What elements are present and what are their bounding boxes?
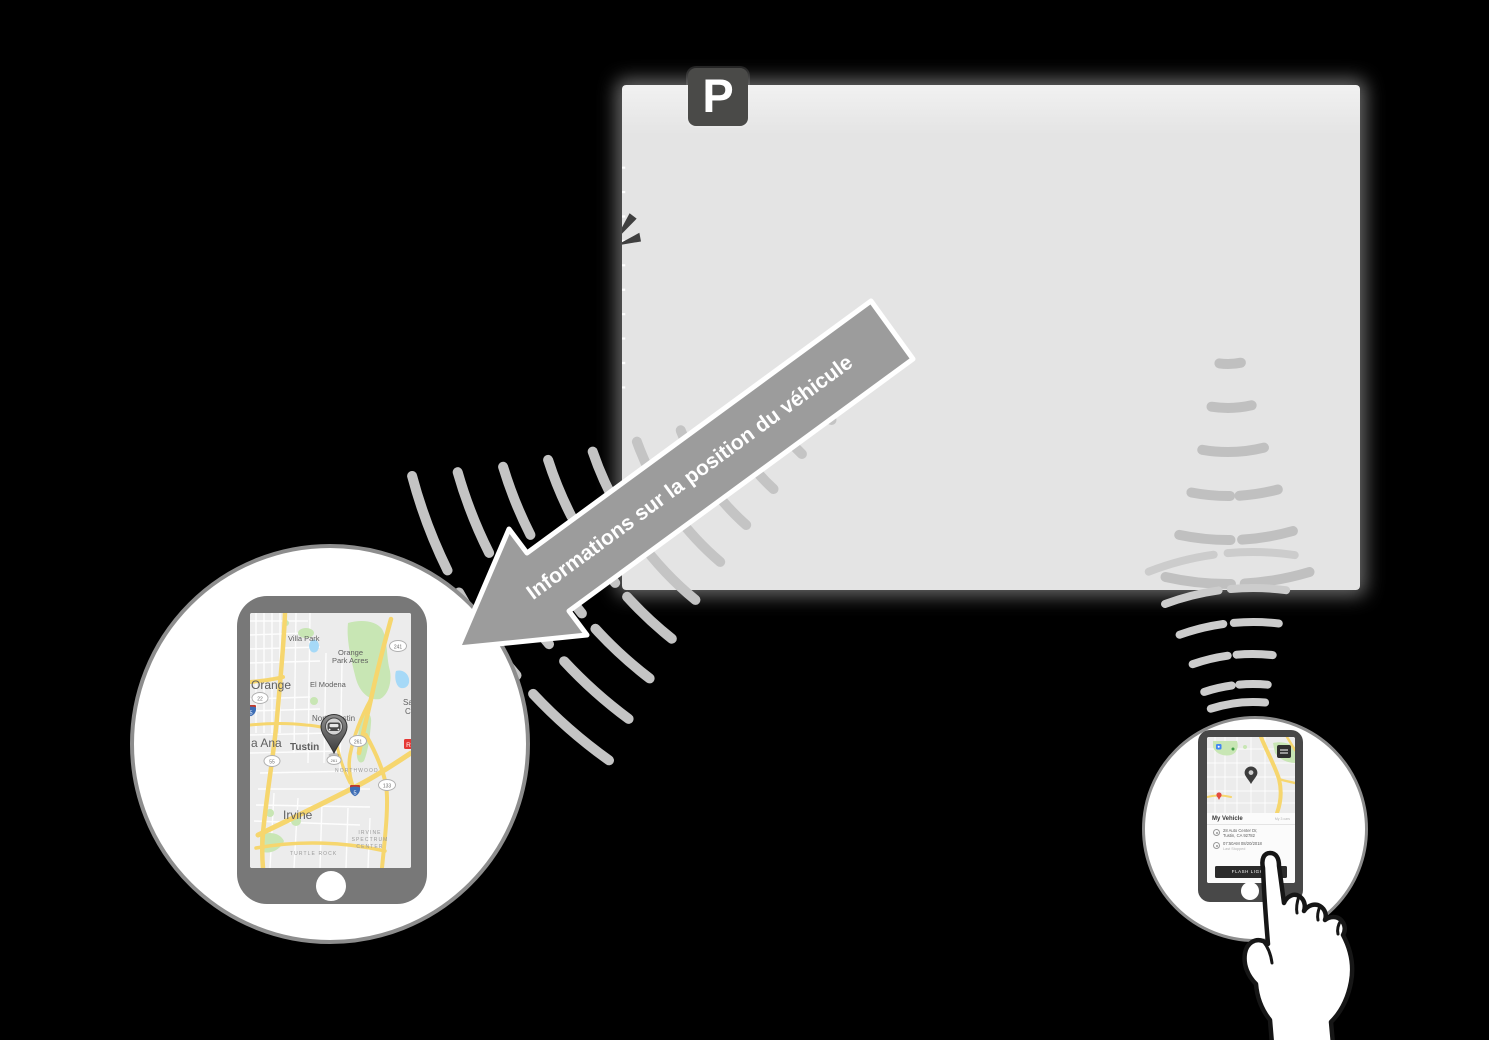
manual-illustration: { "parking_lot": { "sign": "P" }, "arrow… xyxy=(0,0,1489,1040)
pointing-hand-icon xyxy=(0,0,1489,1040)
